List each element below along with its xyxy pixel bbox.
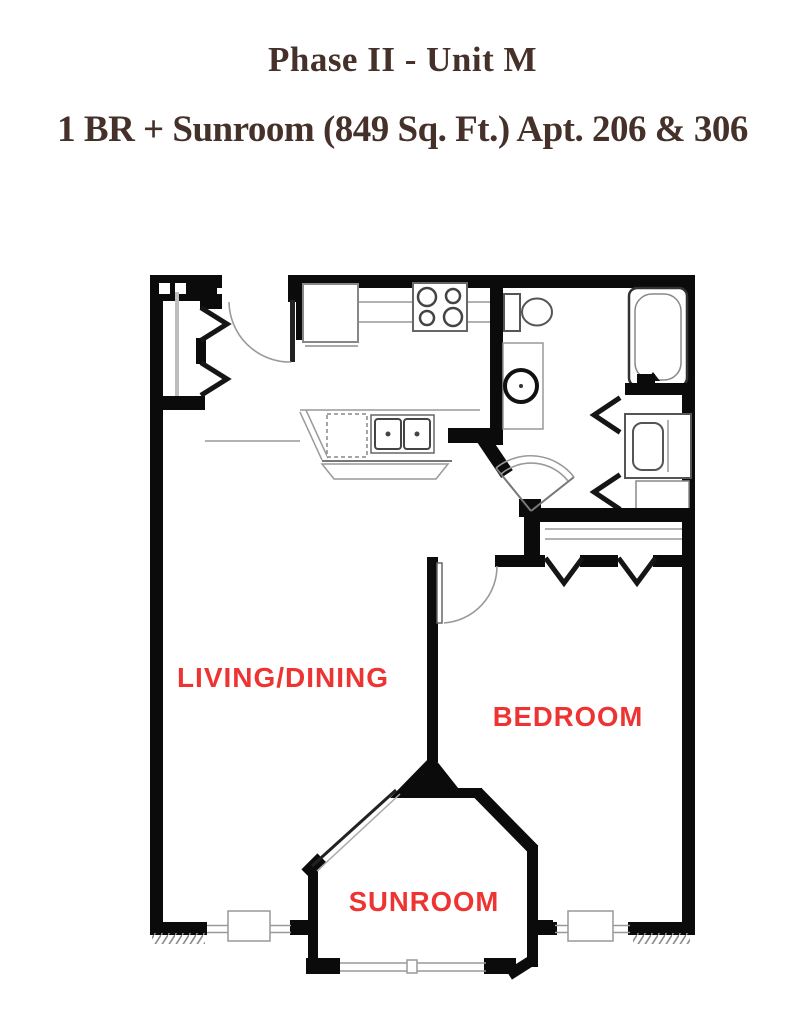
bedroom (390, 529, 695, 798)
kitchen (205, 275, 541, 560)
bathtub (629, 288, 687, 386)
sunroom-bottom-windows (340, 960, 486, 973)
breakfast-bar (322, 464, 448, 479)
page-subtitle: 1 BR + Sunroom (849 Sq. Ft.) Apt. 206 & … (0, 108, 805, 151)
entry-door (200, 294, 295, 362)
range-4-burner (413, 283, 467, 331)
washer (503, 343, 543, 429)
kitchen-double-sink (371, 415, 434, 453)
bifold-door-icon (547, 560, 581, 583)
toilet (504, 294, 552, 331)
sunroom-window-wall (312, 790, 400, 871)
sunroom-bay (290, 788, 553, 975)
page: { "header": { "title_line1": "Phase II -… (0, 0, 805, 1024)
outer-walls (150, 275, 695, 935)
dishwasher (327, 414, 367, 457)
baseboard-heater-icon (152, 933, 205, 944)
bathroom (503, 288, 695, 429)
vanity-sink (625, 414, 691, 478)
bifold-door-icon (594, 476, 618, 508)
dressing-closet (537, 399, 695, 522)
bedroom-door (437, 563, 497, 623)
linen-cabinet (636, 481, 689, 512)
bifold-door-icon (594, 399, 618, 431)
header: Phase II - Unit M 1 BR + Sunroom (849 Sq… (0, 0, 805, 151)
baseboard-heater-icon (633, 933, 690, 944)
floor-plan: LIVING/DINING BEDROOM SUNROOM (0, 0, 805, 1024)
bifold-door-icon (203, 364, 227, 394)
bifold-door-icon (620, 560, 654, 583)
page-title: Phase II - Unit M (0, 40, 805, 80)
refrigerator (303, 284, 358, 342)
bedroom-label: BEDROOM (493, 701, 644, 732)
bifold-door-icon (203, 309, 227, 339)
living-dining-label: LIVING/DINING (177, 662, 389, 693)
sunroom-label: SUNROOM (349, 886, 500, 917)
